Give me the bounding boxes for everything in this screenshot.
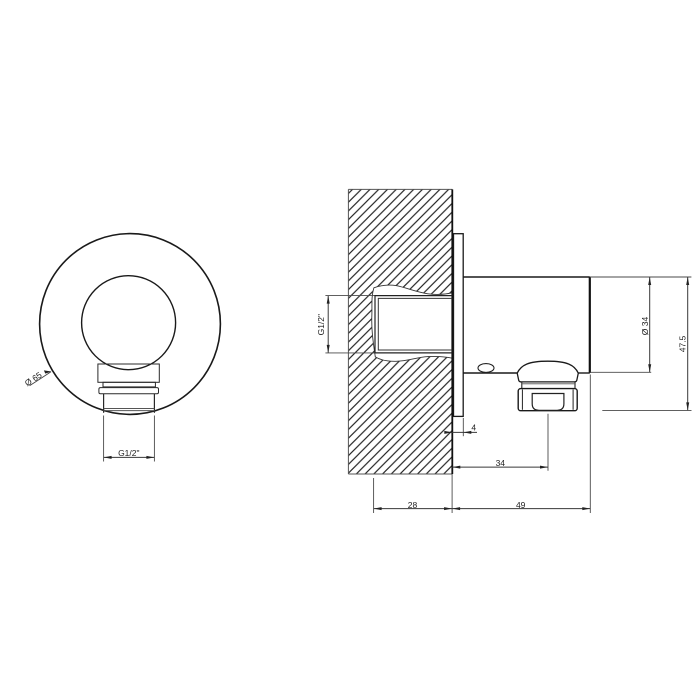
svg-text:49: 49 <box>516 500 526 510</box>
svg-text:G1/2": G1/2" <box>118 448 139 458</box>
svg-text:34: 34 <box>496 458 506 468</box>
svg-text:G1/2": G1/2" <box>316 314 326 335</box>
svg-text:28: 28 <box>408 500 418 510</box>
svg-text:Ø 34: Ø 34 <box>640 317 650 336</box>
svg-text:4: 4 <box>471 423 476 433</box>
svg-text:47.5: 47.5 <box>678 335 688 352</box>
